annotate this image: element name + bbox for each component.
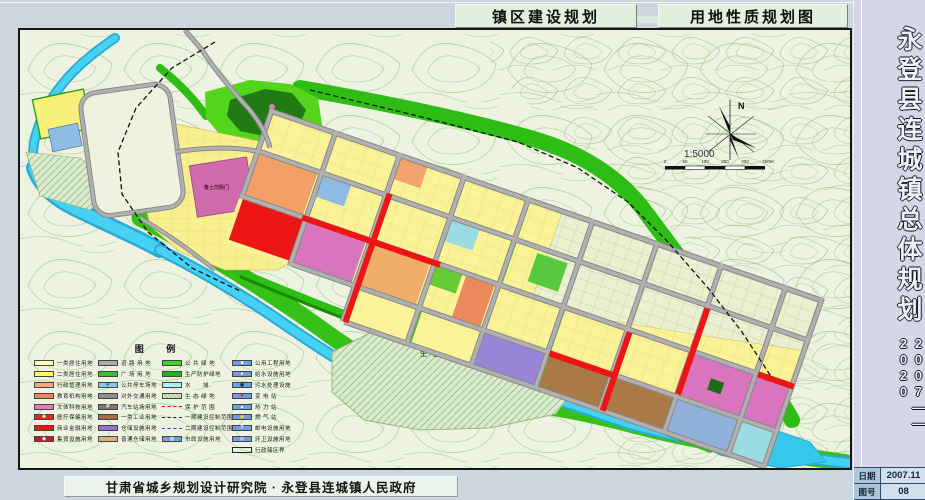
legend-swatch: ◎ <box>162 436 182 442</box>
planning-sheet: 镇区建设规划 用地性质规划图 <box>0 0 925 500</box>
sheet-no-row: 图号 08 <box>854 484 925 500</box>
legend-label: 教育机构用地 <box>57 392 93 400</box>
legend-item: 生 态 绿 地 <box>162 390 226 401</box>
legend-item: 一类工业用地 <box>98 412 156 423</box>
sheet-title-landuse-text: 用地性质规划图 <box>690 6 816 27</box>
legend-label: 生 态 绿 地 <box>185 392 215 400</box>
legend-label: 二期建设控制范围 <box>185 424 233 432</box>
sheet-title-construction-text: 镇区建设规划 <box>492 6 600 27</box>
date-value: 2007.11 <box>881 468 925 483</box>
legend-swatch <box>162 406 182 407</box>
date-label: 日期 <box>854 468 881 483</box>
legend-item: ✦变 电 站 <box>232 390 290 401</box>
svg-text:50: 50 <box>682 159 688 164</box>
legend-label: 邮电设施用地 <box>255 424 291 432</box>
legend-label: 对外交通用地 <box>121 392 157 400</box>
legend-swatch <box>162 417 182 418</box>
legend-swatch <box>34 393 54 399</box>
legend-item: 广 场 用 地 <box>98 369 156 380</box>
legend-swatch: ● <box>232 371 252 377</box>
legend-item: P公共停车场地 <box>98 380 156 391</box>
legend-col-3: 公 共 绿 地生产防护绿地水 域生 态 绿 地保 护 范 围一期建设控制范围二期… <box>162 358 226 455</box>
legend-label: 普通仓储用地 <box>121 435 157 443</box>
title-block-table: 日期 2007.11 图号 08 <box>854 467 925 500</box>
legend-swatch <box>162 360 182 366</box>
legend-label: 一期建设控制范围 <box>185 413 233 421</box>
legend-label: 热 力 站 <box>255 403 277 411</box>
legend-label: 商业金融用地 <box>57 424 93 432</box>
legend-item: ◉污水处理设施 <box>232 380 290 391</box>
legend-swatch <box>34 382 54 388</box>
legend-item: 教育机构用地 <box>34 390 92 401</box>
legend-item: 道 路 用 地 <box>98 358 156 369</box>
legend-item: 公 共 绿 地 <box>162 358 226 369</box>
legend-item: ◆燃 气 站 <box>232 412 290 423</box>
legend-label: 集贸设施用地 <box>57 435 93 443</box>
legend-item: 商业金融用地 <box>34 423 92 434</box>
svg-text:300: 300 <box>741 159 749 164</box>
legend-item: 生产防护绿地 <box>162 369 226 380</box>
legend-swatch <box>98 360 118 366</box>
legend-label: 医疗保健用地 <box>57 413 93 421</box>
legend-label: 污水处理设施 <box>255 381 291 389</box>
map-area: 生态绿地 鲁土司衙门 <box>18 28 852 470</box>
legend-label: 变 电 站 <box>255 392 277 400</box>
legend-item: ■公用工程用地 <box>232 358 290 369</box>
drawing-set-title: 永登县连城镇总体规划 <box>854 26 925 326</box>
legend-item: 普通仓储用地 <box>98 434 156 445</box>
legend-item: T邮电设施用地 <box>232 423 290 434</box>
legend-label: 环卫设施用地 <box>255 435 291 443</box>
legend-swatch <box>232 447 252 453</box>
legend-item: 一期建设控制范围 <box>162 412 226 423</box>
legend-item: 一类居住用地 <box>34 358 92 369</box>
legend-item: ◇环卫设施用地 <box>232 434 290 445</box>
legend-col-1: 一类居住用地二类居住用地行政管理用地教育机构用地文体科技用地✚医疗保健用地商业金… <box>34 358 92 455</box>
legend-swatch: ✦ <box>232 393 252 399</box>
sheet-title-landuse: 用地性质规划图 <box>658 4 848 28</box>
legend-swatch <box>34 404 54 410</box>
legend-item: ●给水设施用地 <box>232 369 290 380</box>
legend-swatch: P <box>98 382 118 388</box>
legend-swatch: ◉ <box>232 382 252 388</box>
scale-text: 1:5000 <box>684 149 715 160</box>
legend-label: 一类居住用地 <box>57 359 93 367</box>
legend-item: 文体科技用地 <box>34 401 92 412</box>
legend-label: 公用工程用地 <box>255 359 291 367</box>
svg-text:400M: 400M <box>762 159 774 164</box>
legend-item: 仓储设施用地 <box>98 423 156 434</box>
legend-swatch <box>162 382 182 388</box>
legend-label: 汽车站场用地 <box>121 403 157 411</box>
legend-swatch <box>162 371 182 377</box>
legend-col-4: ■公用工程用地●给水设施用地◉污水处理设施✦变 电 站▲热 力 站◆燃 气 站T… <box>232 358 290 455</box>
legend-swatch <box>98 371 118 377</box>
legend-swatch <box>34 425 54 431</box>
legend-item: P汽车站场用地 <box>98 401 156 412</box>
legend-swatch: ▲ <box>232 404 252 410</box>
legend-label: 给水设施用地 <box>255 370 291 378</box>
legend-swatch: ◆ <box>34 436 54 442</box>
legend-swatch <box>34 360 54 366</box>
sheet-no-label: 图号 <box>854 484 881 499</box>
legend-label: 公 共 绿 地 <box>185 359 215 367</box>
legend-label: 二类居住用地 <box>57 370 93 378</box>
legend-swatch: ✚ <box>34 414 54 420</box>
heritage-site-label: 鲁土司衙门 <box>204 184 229 191</box>
planning-period: 2007——2020 <box>854 336 925 462</box>
legend-label: 市政设施用地 <box>185 435 221 443</box>
legend-item: ◎市政设施用地 <box>162 434 226 445</box>
north-label: N <box>738 101 745 111</box>
legend-item: 二期建设控制范围 <box>162 423 226 434</box>
legend: 图 例 一类居住用地二类居住用地行政管理用地教育机构用地文体科技用地✚医疗保健用… <box>34 342 276 455</box>
right-sidebar: 永登县连城镇总体规划 2007——2020 日期 2007.11 图号 08 <box>853 0 925 500</box>
svg-text:100: 100 <box>701 159 709 164</box>
legend-label: 文体科技用地 <box>57 403 93 411</box>
legend-item: 行政辖区界 <box>232 444 290 455</box>
legend-swatch <box>98 393 118 399</box>
legend-swatch <box>34 371 54 377</box>
legend-label: 生产防护绿地 <box>185 370 221 378</box>
date-row: 日期 2007.11 <box>854 468 925 484</box>
legend-swatch: ◆ <box>232 414 252 420</box>
legend-label: 仓储设施用地 <box>121 424 157 432</box>
legend-swatch: ■ <box>232 360 252 366</box>
legend-label: 行政辖区界 <box>255 446 285 454</box>
credit-box: 甘肃省城乡规划设计研究院 · 永登县连城镇人民政府 <box>64 476 458 497</box>
credit-text: 甘肃省城乡规划设计研究院 · 永登县连城镇人民政府 <box>105 477 416 496</box>
legend-item: 水 域 <box>162 380 226 391</box>
legend-title: 图 例 <box>34 342 276 355</box>
legend-label: 广 场 用 地 <box>121 370 151 378</box>
legend-item: 二类居住用地 <box>34 369 92 380</box>
sheet-no-value: 08 <box>881 484 925 499</box>
legend-label: 一类工业用地 <box>121 413 157 421</box>
legend-item: 保 护 范 围 <box>162 401 226 412</box>
legend-item: ▲热 力 站 <box>232 401 290 412</box>
legend-swatch: P <box>98 404 118 410</box>
legend-label: 道 路 用 地 <box>121 359 151 367</box>
legend-label: 行政管理用地 <box>57 381 93 389</box>
legend-columns: 一类居住用地二类居住用地行政管理用地教育机构用地文体科技用地✚医疗保健用地商业金… <box>34 358 276 455</box>
legend-swatch <box>162 393 182 399</box>
legend-label: 燃 气 站 <box>255 413 277 421</box>
legend-col-2: 道 路 用 地广 场 用 地P公共停车场地对外交通用地P汽车站场用地一类工业用地… <box>98 358 156 455</box>
legend-label: 公共停车场地 <box>121 381 157 389</box>
legend-swatch <box>98 436 118 442</box>
legend-item: ✚医疗保健用地 <box>34 412 92 423</box>
legend-item: 行政管理用地 <box>34 380 92 391</box>
legend-swatch <box>98 414 118 420</box>
legend-swatch: ◇ <box>232 436 252 442</box>
legend-label: 保 护 范 围 <box>185 403 215 411</box>
legend-swatch <box>98 425 118 431</box>
svg-text:200: 200 <box>721 159 729 164</box>
sheet-title-construction: 镇区建设规划 <box>455 4 637 28</box>
legend-label: 水 域 <box>185 381 209 389</box>
legend-swatch: T <box>232 425 252 431</box>
legend-swatch <box>162 428 182 429</box>
legend-item: ◆集贸设施用地 <box>34 434 92 445</box>
legend-item: 对外交通用地 <box>98 390 156 401</box>
